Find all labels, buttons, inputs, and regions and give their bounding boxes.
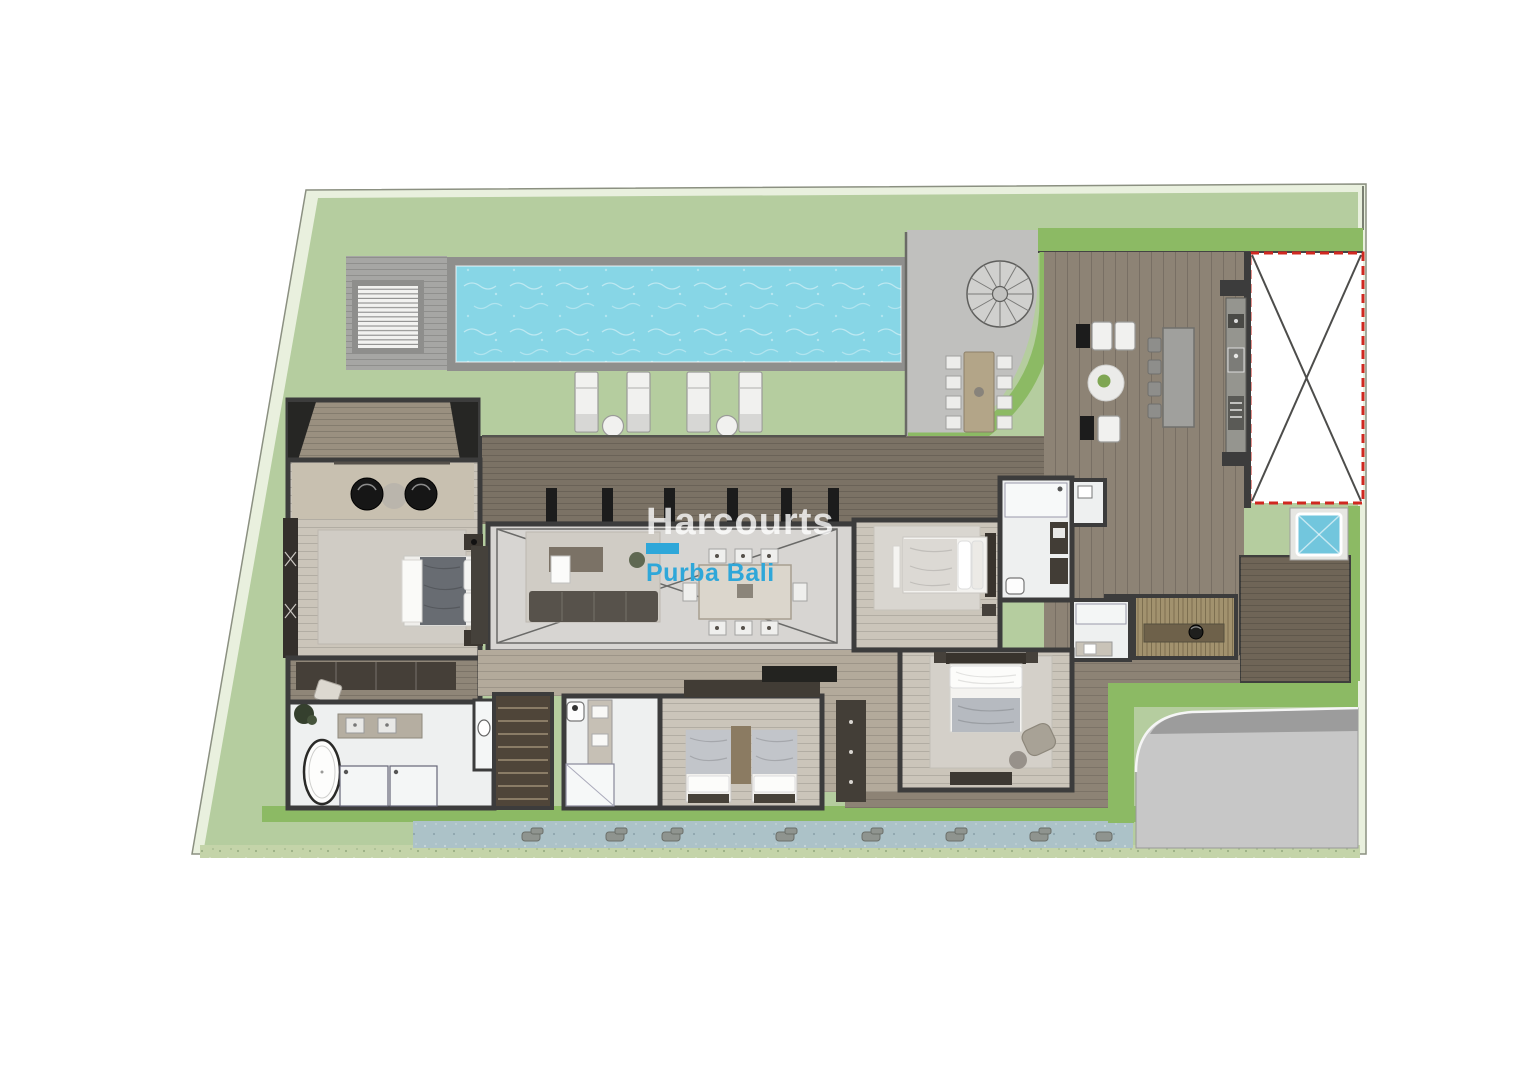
wardrobe: [684, 680, 820, 697]
watermark-brand: Harcourts: [646, 501, 835, 543]
carport-void: [1250, 253, 1363, 503]
bedside-panel: [731, 726, 751, 784]
koi-pond: [413, 821, 1133, 848]
wc-annex: [1072, 480, 1105, 525]
bathtub: [304, 740, 340, 804]
bathroom-2: [564, 696, 660, 808]
twin-bed: [686, 730, 731, 803]
hall-wardrobe: [836, 700, 866, 802]
guest-bed-1: [893, 533, 996, 597]
twin-bed: [752, 730, 797, 803]
deck-strip-vertical-texture: [1072, 652, 1108, 808]
deck-strip-south-texture: [845, 792, 1108, 808]
master-bathroom: [288, 700, 494, 808]
egg-chair: [405, 478, 437, 510]
nightstand: [982, 604, 996, 616]
plant: [629, 552, 645, 568]
jacuzzi: [1290, 508, 1348, 560]
toilet: [567, 702, 584, 721]
double-vanity: [338, 714, 422, 738]
watermark-bar: [646, 543, 679, 554]
swimming-pool: [447, 257, 910, 371]
master-bedroom: [283, 460, 486, 658]
floor-plan-page: Harcourts Purba Bali: [0, 0, 1527, 1080]
egg-chair: [351, 478, 383, 510]
staircase: [494, 694, 552, 808]
console: [950, 772, 1012, 785]
garden-strip-drive-top: [1108, 681, 1358, 707]
watermark-sub: Purba Bali: [646, 559, 775, 587]
master-suite: [283, 400, 494, 808]
cabinet: [1050, 558, 1068, 584]
ac-beam: [762, 666, 837, 682]
sauna: [1134, 596, 1236, 658]
shower: [1076, 604, 1126, 624]
floor-plan-canvas: Harcourts Purba Bali: [0, 0, 1527, 1080]
guest-bedroom-2: [660, 666, 837, 808]
east-dark-deck: [1240, 556, 1350, 682]
dressing-room: [288, 658, 480, 705]
garden-strip-north: [1038, 228, 1363, 252]
nightstand: [934, 652, 946, 663]
wardrobe-west: [283, 518, 298, 658]
wc: [474, 700, 494, 770]
ensuite-bathroom-3: [1072, 600, 1130, 660]
driveway: [1136, 708, 1358, 848]
plant: [1098, 375, 1111, 388]
master-terrace: [288, 400, 478, 462]
toilet: [1006, 578, 1024, 594]
sauna-bench: [1144, 624, 1224, 642]
side-table: [603, 416, 624, 437]
pool-deck-louvre: [346, 256, 447, 370]
nightstand: [1026, 652, 1038, 663]
pouf: [1009, 751, 1027, 769]
spiral-staircase: [967, 261, 1033, 327]
round-mat: [381, 483, 407, 509]
garden-strip-drive-side: [1108, 707, 1134, 823]
guest-bed-3: [946, 653, 1026, 732]
guest-bedroom-1: [854, 520, 1000, 650]
lounge-set: [526, 532, 660, 622]
tv-wall: [471, 546, 488, 644]
guest-bedroom-3: [900, 650, 1072, 790]
side-table: [717, 416, 738, 437]
